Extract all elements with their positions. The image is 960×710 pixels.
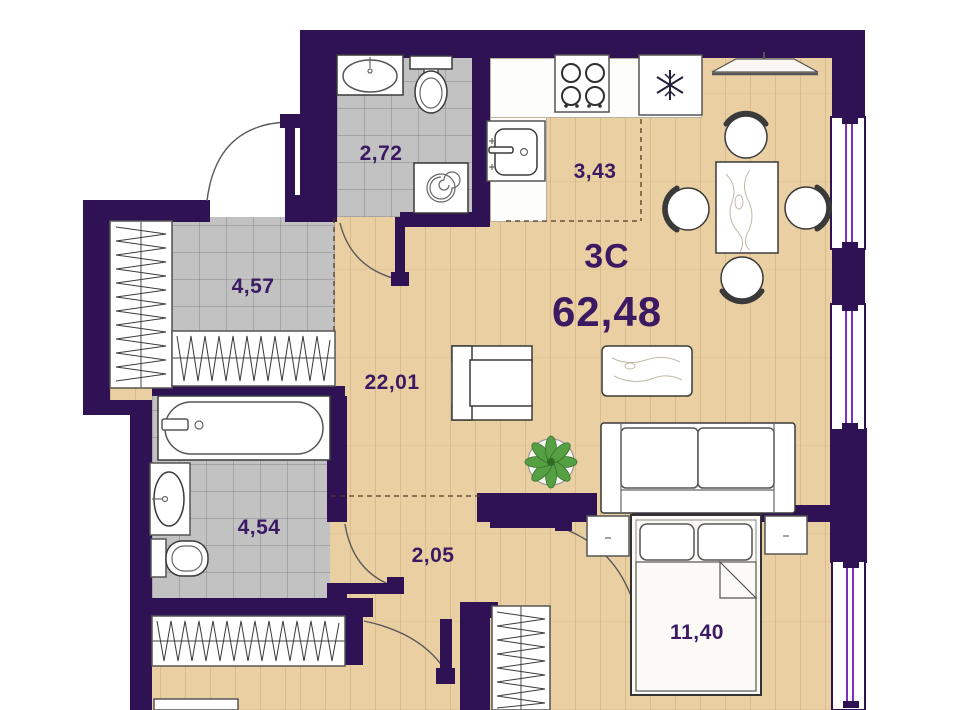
window bbox=[831, 304, 865, 430]
chair bbox=[725, 113, 767, 158]
chair bbox=[785, 187, 829, 229]
bathroom-left-door bbox=[331, 524, 404, 594]
washing-machine bbox=[414, 163, 468, 213]
sofa bbox=[601, 423, 795, 513]
nightstand bbox=[765, 516, 807, 554]
chair bbox=[665, 188, 709, 230]
room-area-label-living: 22,01 bbox=[364, 371, 419, 395]
armchair bbox=[452, 346, 532, 420]
wash-basin bbox=[337, 55, 403, 95]
bed bbox=[631, 515, 761, 695]
kitchen-sink bbox=[487, 121, 545, 181]
window bbox=[832, 561, 865, 710]
room-area-label-hallway: 4,57 bbox=[232, 275, 275, 299]
pillow bbox=[640, 524, 694, 560]
fridge bbox=[639, 55, 702, 115]
door-leaf bbox=[285, 124, 295, 202]
wardrobe bbox=[172, 331, 335, 386]
floor-plan: 3C 62,48 2,72 3,43 4,57 22,01 4,54 2,05 … bbox=[0, 0, 960, 710]
pillow bbox=[698, 524, 752, 560]
fixtures-layer bbox=[0, 0, 960, 710]
room-area-label-corridor: 2,05 bbox=[412, 544, 455, 568]
bathtub bbox=[158, 396, 330, 460]
room-area-label-bathroom-top: 2,72 bbox=[360, 142, 403, 166]
door-leaf bbox=[331, 583, 395, 594]
door-leaf bbox=[395, 217, 405, 279]
cooker-hood bbox=[712, 52, 818, 74]
chair bbox=[721, 257, 763, 302]
bathroom-top-door bbox=[340, 217, 409, 286]
bed-fragment bbox=[154, 699, 238, 710]
room-area-label-kitchen: 3,43 bbox=[574, 160, 617, 184]
plant bbox=[525, 436, 577, 488]
window bbox=[831, 117, 865, 249]
room-area-label-bathroom-left: 4,54 bbox=[238, 516, 281, 540]
coffee-table bbox=[602, 346, 692, 396]
dining-table bbox=[716, 162, 778, 253]
total-area-label: 62,48 bbox=[552, 288, 662, 336]
wardrobe bbox=[152, 616, 345, 666]
toilet bbox=[410, 56, 452, 113]
apartment-type-label: 3C bbox=[584, 238, 629, 277]
nightstand bbox=[587, 516, 629, 556]
stove bbox=[555, 55, 609, 112]
toilet bbox=[151, 539, 208, 577]
wardrobe bbox=[492, 606, 550, 710]
entry-door bbox=[207, 114, 300, 202]
wardrobe bbox=[110, 221, 172, 388]
bottom-room-door bbox=[364, 619, 455, 684]
door-leaf bbox=[490, 517, 563, 528]
room-area-label-bedroom: 11,40 bbox=[670, 621, 724, 645]
wash-basin bbox=[150, 463, 190, 535]
